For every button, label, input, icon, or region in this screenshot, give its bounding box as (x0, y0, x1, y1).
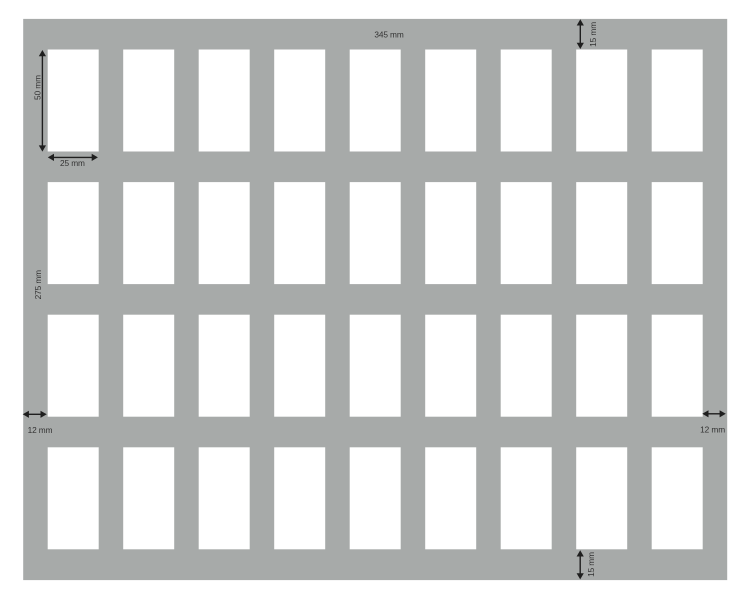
svg-text:12 mm: 12 mm (700, 424, 725, 434)
svg-text:50 mm: 50 mm (32, 75, 42, 100)
svg-text:15 mm: 15 mm (588, 22, 598, 47)
svg-text:275 mm: 275 mm (33, 270, 43, 300)
svg-text:345 mm: 345 mm (374, 29, 404, 39)
svg-text:25 mm: 25 mm (60, 158, 85, 168)
svg-text:15 mm: 15 mm (586, 552, 596, 577)
svg-text:12 mm: 12 mm (28, 425, 53, 435)
